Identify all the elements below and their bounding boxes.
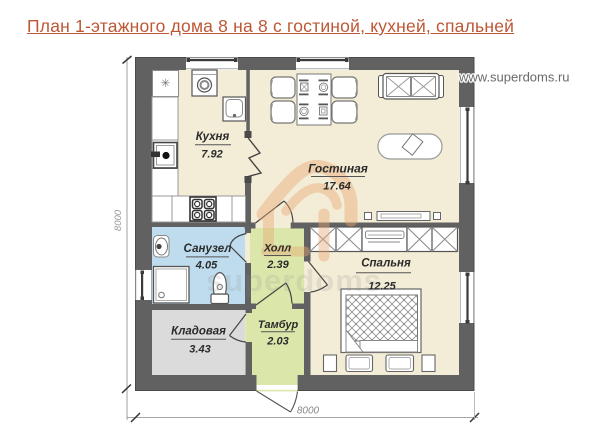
- svg-text:superdoms: superdoms: [206, 263, 382, 298]
- svg-text:4.05: 4.05: [195, 260, 218, 272]
- svg-text:7.92: 7.92: [201, 149, 222, 161]
- svg-text:Санузел: Санузел: [184, 243, 232, 255]
- svg-text:8000: 8000: [297, 406, 320, 417]
- svg-text:✳: ✳: [161, 78, 171, 90]
- svg-text:8000: 8000: [113, 209, 124, 231]
- svg-text:12.25: 12.25: [368, 281, 396, 293]
- svg-text:Гостиная: Гостиная: [308, 162, 368, 176]
- svg-text:www.superdoms.ru: www.superdoms.ru: [458, 70, 570, 85]
- svg-text:Спальня: Спальня: [361, 258, 411, 270]
- svg-text:Кухня: Кухня: [196, 131, 230, 143]
- svg-text:Кладовая: Кладовая: [171, 326, 226, 338]
- svg-text:Тамбур: Тамбур: [258, 319, 299, 331]
- svg-text:3.43: 3.43: [189, 344, 210, 356]
- svg-text:17.64: 17.64: [323, 181, 351, 193]
- svg-text:Холл: Холл: [263, 243, 291, 255]
- svg-text:2.39: 2.39: [266, 259, 289, 271]
- svg-text:2.03: 2.03: [266, 336, 288, 348]
